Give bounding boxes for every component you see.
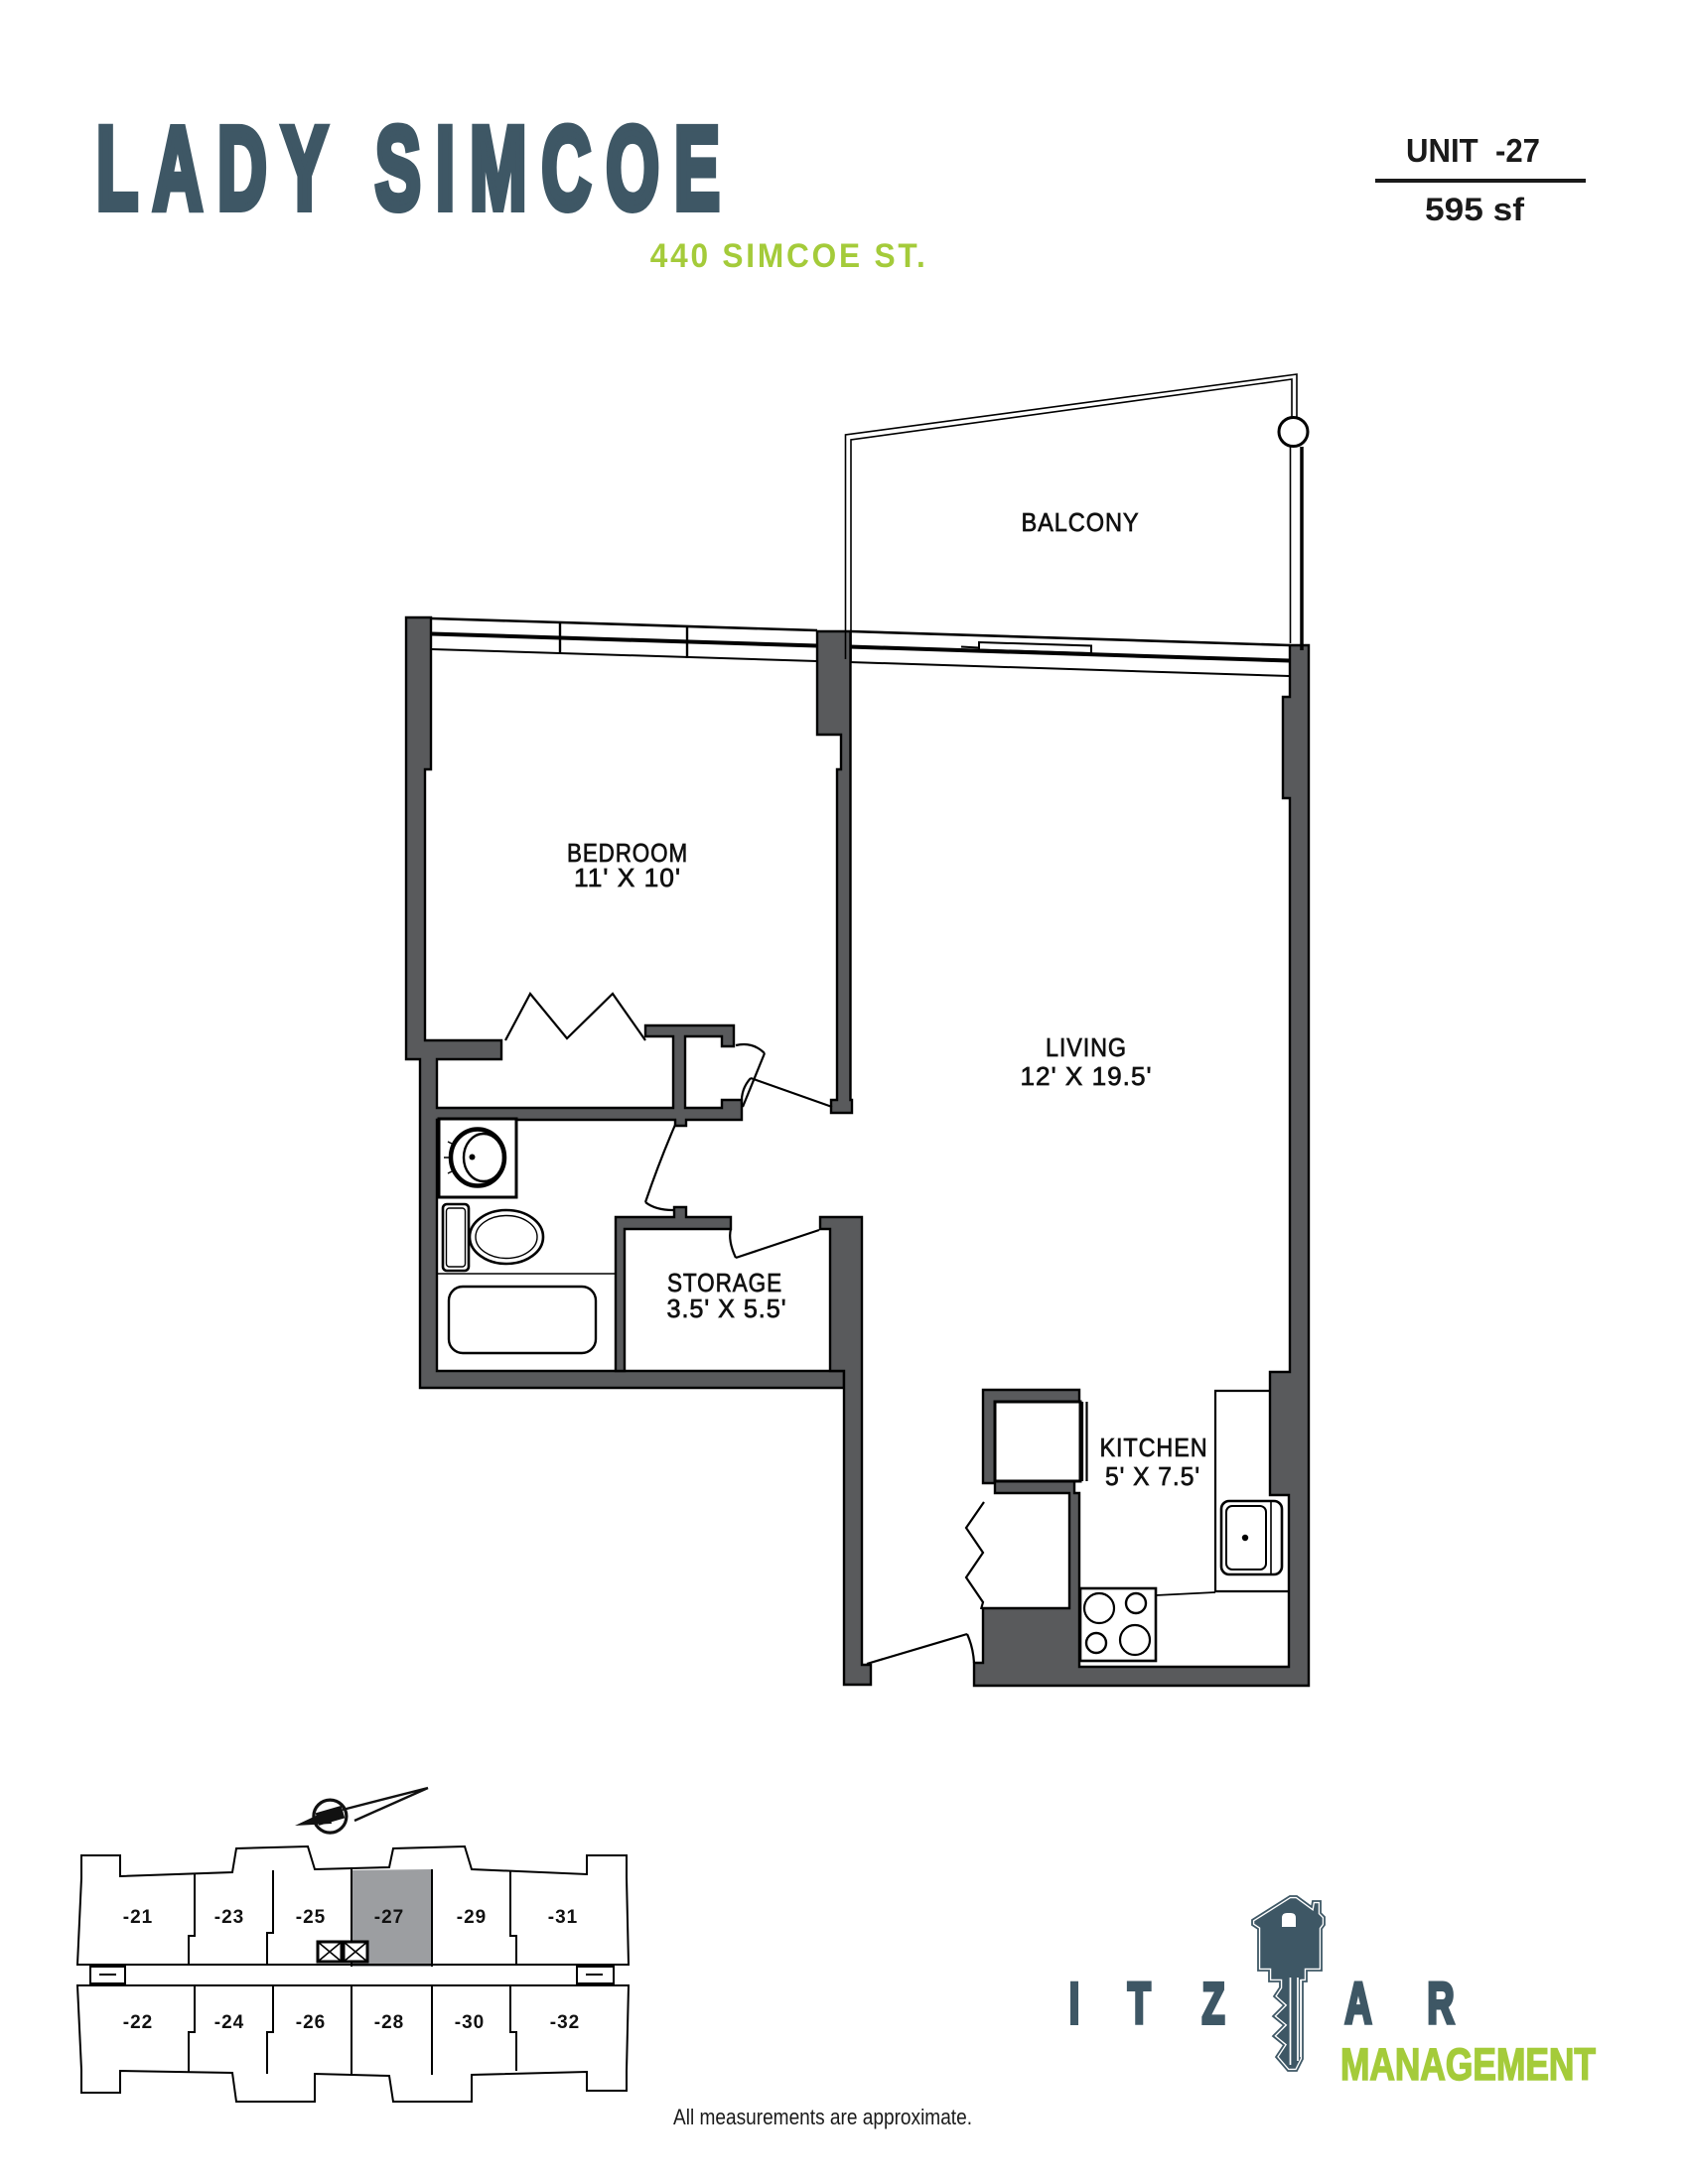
- svg-text:5' X 7.5': 5' X 7.5': [1105, 1461, 1200, 1491]
- svg-text:UNIT -27: UNIT -27: [1406, 132, 1540, 169]
- svg-text:R: R: [1427, 1973, 1454, 2036]
- svg-text:-22: -22: [123, 2012, 153, 2033]
- svg-text:3.5' X 5.5': 3.5' X 5.5': [667, 1294, 787, 1323]
- svg-text:All measurements are approxima: All measurements are approximate.: [673, 2105, 972, 2129]
- svg-text:440 SIMCOE ST.: 440 SIMCOE ST.: [650, 236, 928, 274]
- svg-text:LIVING: LIVING: [1046, 1032, 1127, 1062]
- svg-text:-26: -26: [296, 2012, 326, 2033]
- svg-text:LADY SIMCOE: LADY SIMCOE: [96, 102, 735, 233]
- svg-text:-31: -31: [548, 1907, 578, 1928]
- svg-text:T: T: [1128, 1973, 1151, 2036]
- svg-text:-21: -21: [123, 1907, 153, 1928]
- svg-text:-23: -23: [214, 1907, 244, 1928]
- svg-text:BALCONY: BALCONY: [1022, 507, 1140, 537]
- svg-text:Z: Z: [1201, 1973, 1224, 2036]
- svg-text:-27: -27: [374, 1907, 404, 1928]
- svg-text:-25: -25: [296, 1907, 326, 1928]
- svg-text:12' X 19.5': 12' X 19.5': [1021, 1061, 1153, 1091]
- svg-text:MANAGEMENT: MANAGEMENT: [1340, 2039, 1596, 2090]
- svg-text:-24: -24: [214, 2012, 244, 2033]
- svg-text:I: I: [1069, 1973, 1079, 2036]
- svg-text:-30: -30: [455, 2012, 485, 2033]
- svg-text:-28: -28: [374, 2012, 404, 2033]
- svg-text:-29: -29: [457, 1907, 487, 1928]
- svg-text:A: A: [1344, 1973, 1371, 2036]
- svg-text:11' X 10': 11' X 10': [574, 863, 681, 892]
- svg-text:KITCHEN: KITCHEN: [1100, 1433, 1208, 1462]
- svg-text:-32: -32: [550, 2012, 580, 2033]
- svg-text:595 sf: 595 sf: [1425, 192, 1524, 227]
